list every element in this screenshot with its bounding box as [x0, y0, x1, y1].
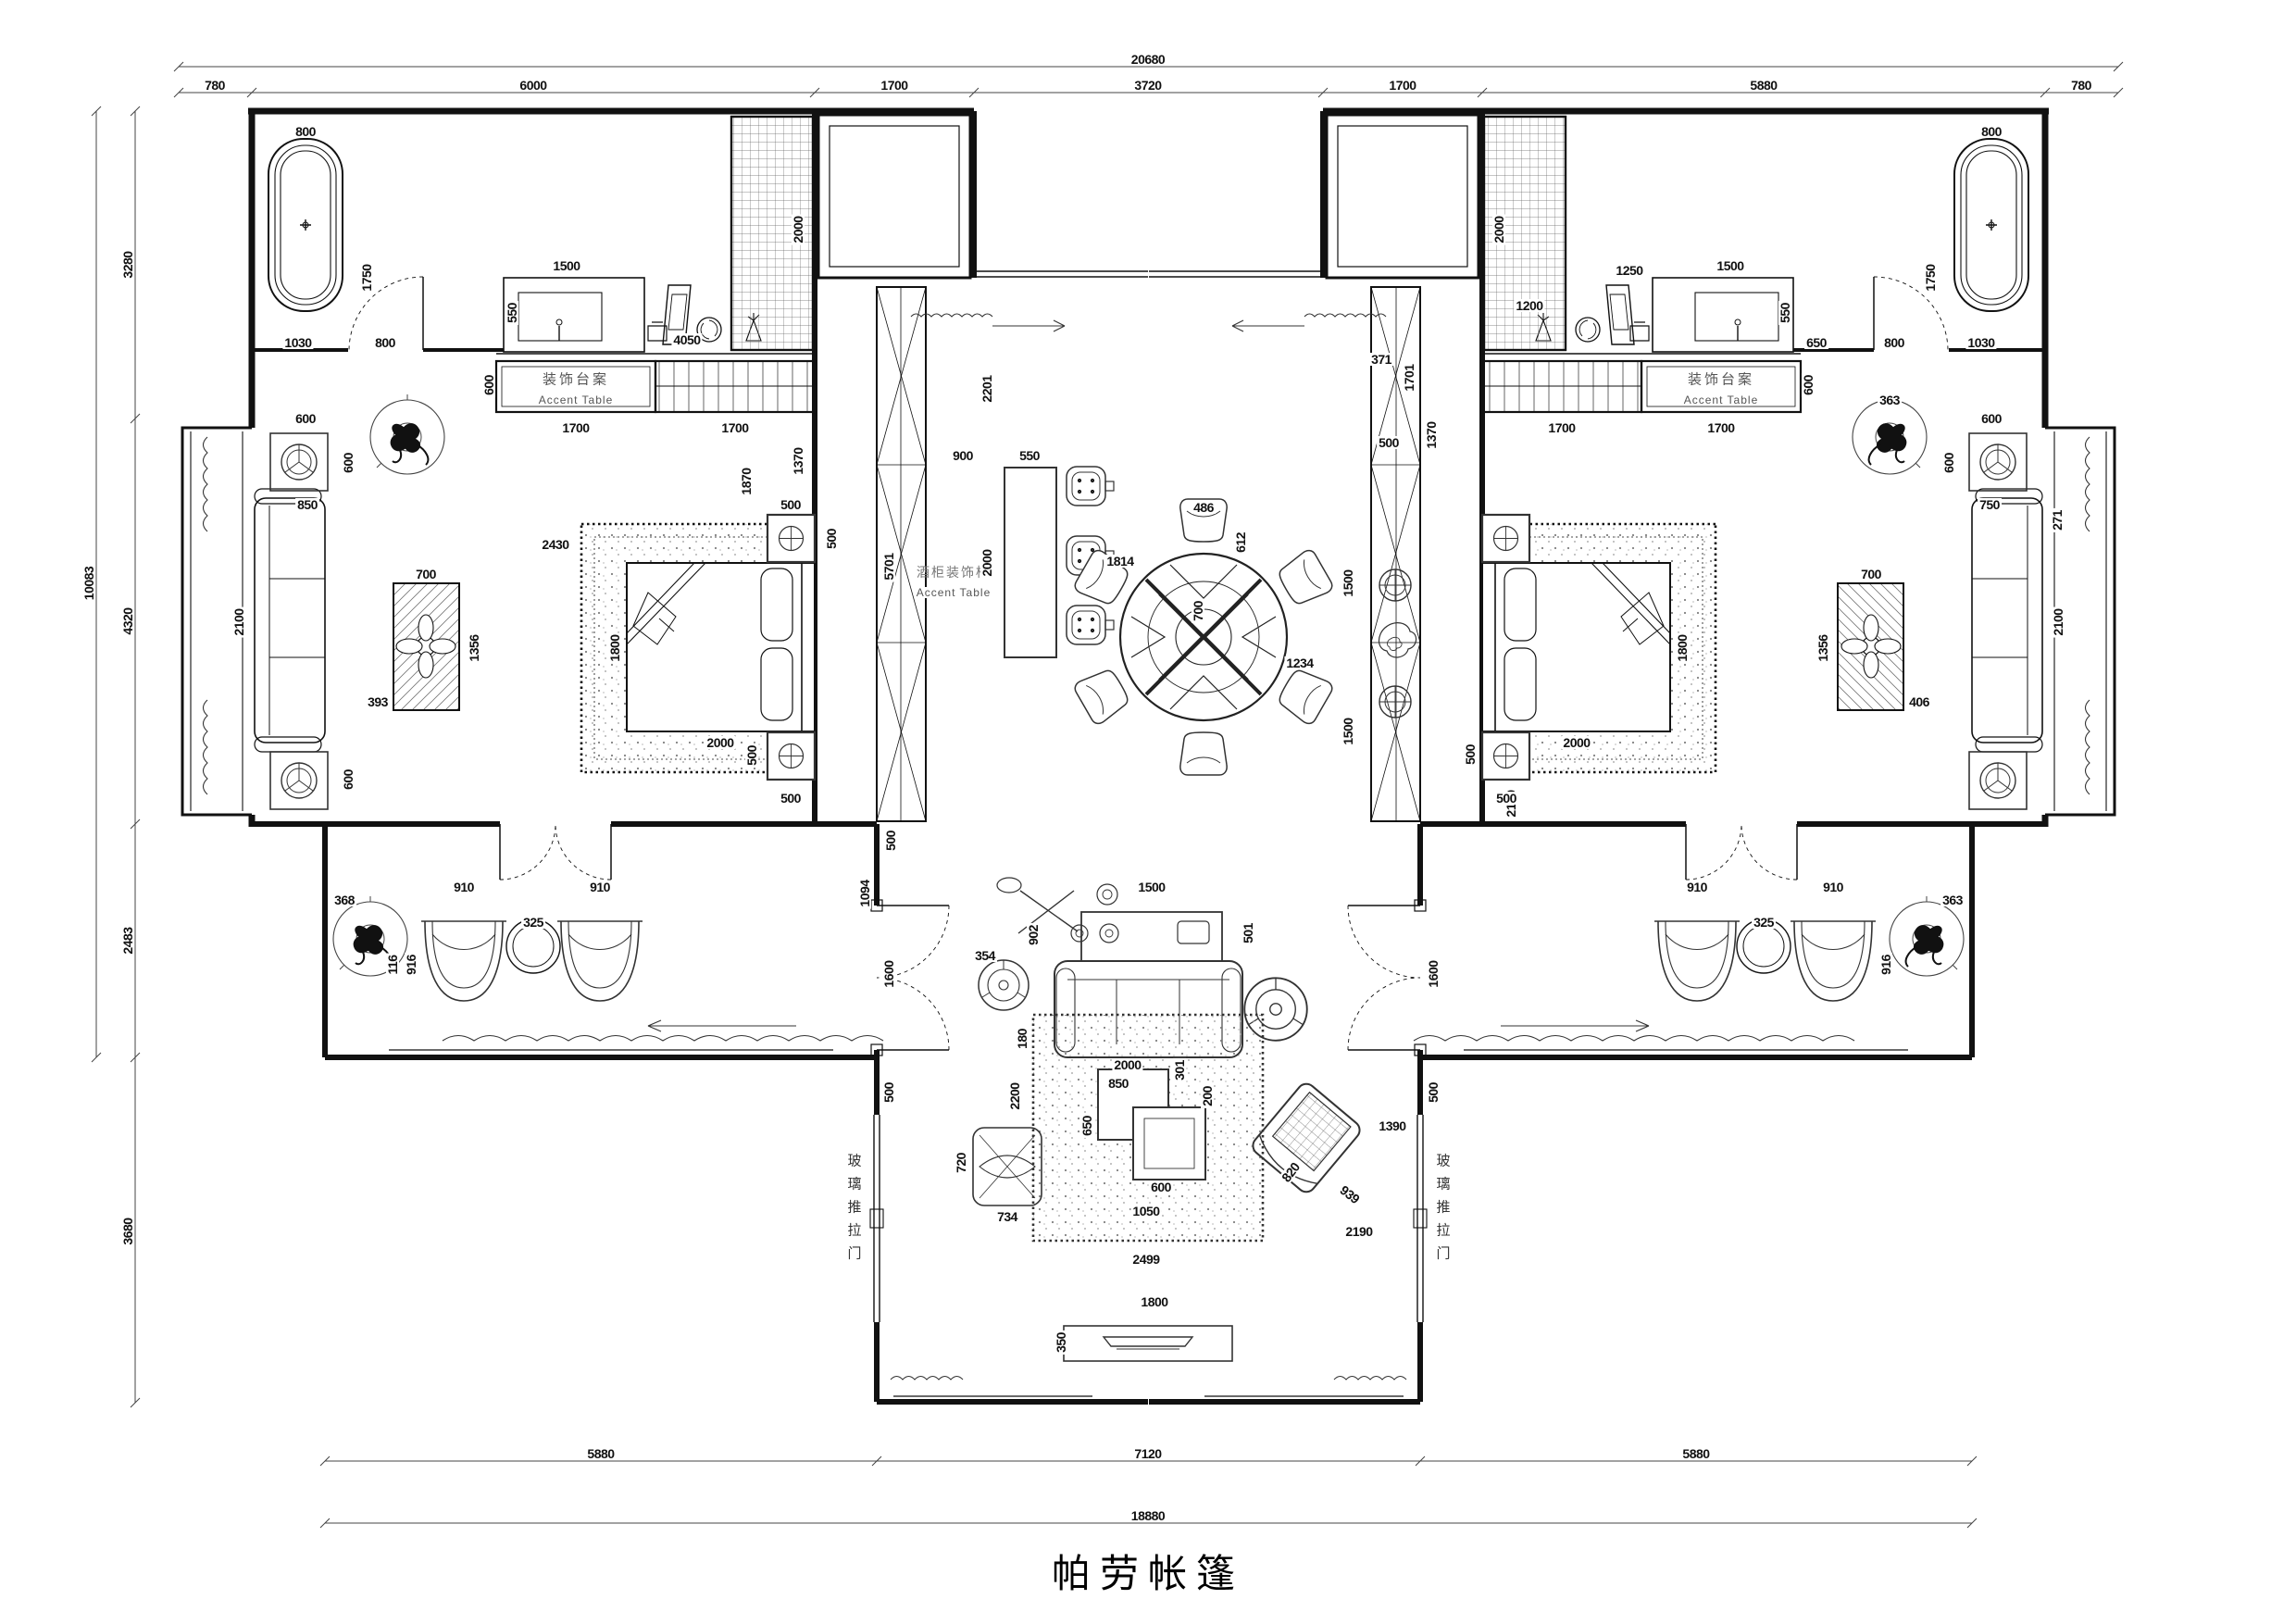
dimension-label: 500 — [745, 743, 758, 768]
dimension-label: 2190 — [1343, 1225, 1374, 1238]
dimension-label: 7120 — [1132, 1447, 1163, 1460]
dimension-label: 600 — [293, 412, 318, 425]
dimension-label: 600 — [1149, 1181, 1173, 1193]
dimension-label: 900 — [951, 449, 975, 462]
dimension-label: 1356 — [468, 632, 480, 663]
dimension-label: 1700 — [560, 421, 591, 434]
dimension-label: 180 — [1016, 1027, 1029, 1051]
door-label: 玻璃推拉门 — [1436, 1154, 1450, 1269]
dimension-label: 720 — [955, 1151, 967, 1175]
dimension-label: 902 — [1027, 923, 1040, 947]
dimension-label: 550 — [505, 301, 518, 325]
dimension-label: 1600 — [1427, 958, 1440, 989]
dimension-label: 734 — [995, 1210, 1019, 1223]
dimension-label: 406 — [1907, 695, 1931, 708]
dimension-label: 3280 — [121, 249, 134, 280]
dimension-label: 500 — [1464, 743, 1477, 767]
dimension-label: 1050 — [1130, 1205, 1161, 1218]
dimension-label: 650 — [1804, 336, 1828, 349]
dimension-label: 116 — [386, 953, 399, 976]
dimension-label: 325 — [521, 916, 545, 929]
dimension-label: 650 — [1080, 1114, 1093, 1138]
dimension-label: 301 — [1173, 1058, 1186, 1082]
dimension-label: 1750 — [1924, 262, 1937, 293]
dimension-label: 1500 — [1341, 568, 1354, 598]
dimension-label: 910 — [1821, 881, 1845, 893]
dimension-label: 600 — [482, 373, 495, 397]
dimension-label: 5701 — [882, 551, 895, 581]
dimension-label: 1700 — [1387, 79, 1417, 92]
dimension-label: Accent Table — [539, 394, 614, 406]
dimension-label: 750 — [1978, 498, 2002, 511]
dimension-label: 1800 — [608, 632, 621, 663]
dimension-label: 700 — [1859, 568, 1883, 581]
dimension-label: 500 — [1377, 436, 1401, 449]
dimension-label: 780 — [203, 79, 227, 92]
dimension-label: 910 — [588, 881, 612, 893]
dimension-label: 500 — [825, 527, 838, 551]
dimension-label: 500 — [882, 1081, 895, 1105]
dimension-label: 3680 — [121, 1216, 134, 1246]
dimension-label: 800 — [293, 125, 318, 138]
dimension-label: 6000 — [518, 79, 548, 92]
dimension-label: 18880 — [1129, 1509, 1167, 1522]
dimension-label: 780 — [2069, 79, 2093, 92]
dimension-label: Accent Table — [917, 587, 992, 598]
floor-plan-page: 2068078060001700372017005880780100833280… — [0, 0, 2296, 1624]
dimension-label: 10083 — [82, 565, 95, 602]
dimension-label: 1500 — [1715, 259, 1745, 272]
dimension-label: 600 — [1942, 451, 1955, 475]
dimension-label: 1750 — [360, 262, 373, 293]
dimension-label: 800 — [373, 336, 397, 349]
dimension-label: 1701 — [1403, 362, 1416, 393]
dimension-label: 2000 — [705, 736, 735, 749]
dimension-label: 2200 — [1008, 1081, 1021, 1111]
drawing-title: 帕劳帐篷 — [1052, 1555, 1244, 1593]
dimension-label: 820 — [1279, 1159, 1304, 1186]
dimension-label: 1500 — [1341, 716, 1354, 746]
dimension-label: 1800 — [1676, 632, 1689, 663]
dimension-label: 600 — [342, 768, 355, 792]
dimension-label: 2201 — [980, 373, 993, 404]
dimension-label: 271 — [2051, 508, 2064, 532]
room-label: 装饰台案 — [543, 373, 609, 387]
dimension-label: 1370 — [792, 445, 805, 476]
dimension-label: 910 — [1685, 881, 1709, 893]
dimension-label: 2000 — [792, 214, 805, 244]
dimension-label: 5880 — [585, 1447, 616, 1460]
dimension-label: 4050 — [671, 333, 702, 346]
dimension-label: 1030 — [282, 336, 313, 349]
dimension-label: 1700 — [1546, 421, 1577, 434]
dimension-label: 1700 — [719, 421, 750, 434]
dimension-label: 910 — [452, 881, 476, 893]
dimension-label: 850 — [295, 498, 319, 511]
annotation-layer: 2068078060001700372017005880780100833280… — [0, 0, 2296, 1624]
dimension-label: 1250 — [1614, 264, 1644, 277]
dimension-label: 2000 — [980, 547, 993, 578]
dimension-label: 350 — [1054, 1330, 1067, 1355]
dimension-label: 325 — [1752, 916, 1776, 929]
dimension-label: 2000 — [1561, 736, 1591, 749]
dimension-label: 363 — [1940, 893, 1965, 906]
dimension-label: 500 — [884, 829, 897, 853]
dimension-label: 700 — [414, 568, 438, 581]
dimension-label: Accent Table — [1684, 394, 1759, 406]
dimension-label: 1814 — [1104, 555, 1135, 568]
dimension-label: 600 — [342, 451, 355, 475]
dimension-label: 1500 — [1136, 881, 1167, 893]
dimension-label: 800 — [1979, 125, 2003, 138]
dimension-label: 550 — [1017, 449, 1042, 462]
dimension-label: 1800 — [1139, 1295, 1169, 1308]
room-label: 装饰台案 — [1688, 373, 1754, 387]
dimension-label: 4320 — [121, 606, 134, 636]
dimension-label: 916 — [405, 953, 418, 977]
dimension-label: 600 — [1802, 373, 1815, 397]
dimension-label: 1234 — [1284, 656, 1315, 669]
dimension-label: 500 — [779, 792, 803, 805]
dimension-label: 2000 — [1492, 214, 1505, 244]
dimension-label: 1094 — [858, 878, 871, 908]
dimension-label: 1390 — [1377, 1119, 1407, 1132]
dimension-label: 1500 — [551, 259, 581, 272]
dimension-label: 850 — [1106, 1077, 1130, 1090]
dimension-label: 5880 — [1680, 1447, 1711, 1460]
dimension-label: 501 — [1242, 921, 1254, 945]
dimension-label: 800 — [1882, 336, 1906, 349]
dimension-label: 2000 — [1112, 1058, 1142, 1071]
dimension-label: 1370 — [1425, 419, 1438, 450]
door-label: 玻璃推拉门 — [847, 1154, 861, 1269]
dimension-label: 1870 — [740, 466, 753, 496]
dimension-label: 700 — [1192, 599, 1204, 623]
dimension-label: 5880 — [1748, 79, 1778, 92]
dimension-label: 1700 — [879, 79, 909, 92]
dimension-label: 550 — [1778, 301, 1791, 325]
dimension-label: 2483 — [121, 925, 134, 956]
dimension-label: 1700 — [1705, 421, 1736, 434]
dimension-label: 20680 — [1129, 53, 1167, 66]
dimension-label: 612 — [1234, 531, 1247, 555]
dimension-label: 371 — [1369, 353, 1393, 366]
dimension-label: 500 — [779, 498, 803, 511]
dimension-label: 486 — [1192, 501, 1216, 514]
dimension-label: 1030 — [1965, 336, 1996, 349]
dimension-label: 939 — [1337, 1182, 1364, 1207]
dimension-label: 363 — [1878, 394, 1902, 406]
dimension-label: 500 — [1427, 1081, 1440, 1105]
dimension-label: 368 — [332, 893, 356, 906]
dimension-label: 600 — [1979, 412, 2003, 425]
dimension-label: 500 — [1494, 792, 1518, 805]
dimension-label: 1356 — [1816, 632, 1829, 663]
dimension-label: 2100 — [2052, 606, 2065, 637]
dimension-label: 3720 — [1132, 79, 1163, 92]
dimension-label: 916 — [1879, 953, 1892, 977]
dimension-label: 200 — [1201, 1084, 1214, 1108]
dimension-label: 2499 — [1130, 1253, 1161, 1266]
dimension-label: 393 — [366, 695, 390, 708]
dimension-label: 2430 — [540, 538, 570, 551]
dimension-label: 354 — [973, 949, 997, 962]
dimension-label: 1600 — [882, 958, 895, 989]
dimension-label: 2100 — [232, 606, 245, 637]
dimension-label: 1200 — [1514, 299, 1544, 312]
